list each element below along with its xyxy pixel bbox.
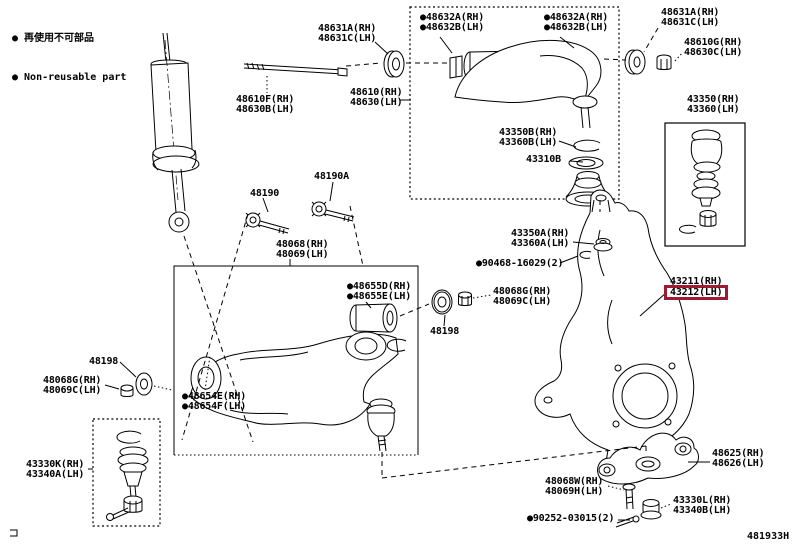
camber-adjust-cam-bolts-drawing bbox=[246, 202, 354, 234]
callout-48198-right-line-1[interactable]: 48198 bbox=[430, 327, 459, 337]
callout-48610g[interactable]: 48610G(RH)48630C(LH) bbox=[684, 38, 742, 57]
callout-48625-line-2[interactable]: 48626(LH) bbox=[712, 459, 764, 469]
callout-48190a-line-1[interactable]: 48190A bbox=[314, 172, 349, 182]
callout-48068g-left-line-2[interactable]: 48069C(LH) bbox=[43, 386, 101, 396]
upper-ball-joint-kit-drawing bbox=[680, 130, 722, 233]
cam-plate-left-drawing bbox=[121, 373, 152, 397]
callout-48068[interactable]: 48068(RH)48069(LH) bbox=[276, 240, 328, 259]
callout-48632-right-line-2[interactable]: ●48632B(LH) bbox=[544, 23, 608, 33]
callout-48632-left-line-2[interactable]: ●48632B(LH) bbox=[420, 23, 484, 33]
callout-48068g-right-line-2[interactable]: 48069C(LH) bbox=[493, 297, 551, 307]
callout-90468-line-1[interactable]: ●90468-16029(2) bbox=[476, 259, 563, 269]
callout-48068w-line-2[interactable]: 48069H(LH) bbox=[545, 487, 603, 497]
callout-48610f[interactable]: 48610F(RH)48630B(LH) bbox=[236, 95, 294, 114]
callout-48610-line-2[interactable]: 48630(LH) bbox=[350, 98, 402, 108]
callout-48068w[interactable]: 48068W(RH)48069H(LH) bbox=[545, 477, 603, 496]
callout-48655-line-2[interactable]: ●48655E(LH) bbox=[347, 292, 411, 302]
legend: ● 再使用不可部品 ● Non-reusable part bbox=[12, 6, 126, 110]
upper-arm-shaft-bolt-drawing bbox=[244, 51, 404, 77]
callout-48631a-right[interactable]: 48631A(RH)48631C(LH) bbox=[661, 8, 719, 27]
corner-print-mark bbox=[10, 530, 17, 536]
callout-48198-left[interactable]: 48198 bbox=[89, 357, 118, 367]
legend-line-jp: ● 再使用不可部品 bbox=[12, 32, 126, 45]
callout-48610g-line-2[interactable]: 48630C(LH) bbox=[684, 48, 742, 58]
callout-48631a-left-line-2[interactable]: 48631C(LH) bbox=[318, 34, 376, 44]
callout-48610[interactable]: 48610(RH)48630(LH) bbox=[350, 88, 402, 107]
callout-48068g-left[interactable]: 48068G(RH)48069C(LH) bbox=[43, 376, 101, 395]
callout-43350b[interactable]: 43350B(RH)43360B(LH) bbox=[499, 128, 557, 147]
callout-48625[interactable]: 48625(RH)48626(LH) bbox=[712, 449, 764, 468]
callout-48190-line-1[interactable]: 48190 bbox=[250, 189, 279, 199]
callout-43350b-line-2[interactable]: 43360B(LH) bbox=[499, 138, 557, 148]
callout-90252[interactable]: ●90252-03015(2) bbox=[527, 514, 614, 524]
callout-43330l[interactable]: 43330L(RH)43340B(LH) bbox=[673, 496, 731, 515]
camber-washer-nut-drawing bbox=[625, 50, 671, 74]
callout-43310b-line-1[interactable]: 43310B bbox=[526, 155, 561, 165]
callout-48654-line-2[interactable]: ●48654F(LH) bbox=[182, 402, 246, 412]
callout-43330l-line-2[interactable]: 43340B(LH) bbox=[673, 506, 731, 516]
callout-48654[interactable]: ●48654E(RH)●48654F(LH) bbox=[182, 392, 246, 411]
callout-48190a[interactable]: 48190A bbox=[314, 172, 349, 182]
lower-ball-joint-kit-drawing bbox=[107, 431, 149, 520]
callout-90252-line-1[interactable]: ●90252-03015(2) bbox=[527, 514, 614, 524]
callout-48610f-line-2[interactable]: 48630B(LH) bbox=[236, 105, 294, 115]
callout-48068-line-2[interactable]: 48069(LH) bbox=[276, 250, 328, 260]
callout-48190[interactable]: 48190 bbox=[250, 189, 279, 199]
callout-43310b[interactable]: 43310B bbox=[526, 155, 561, 165]
callout-48631a-right-line-2[interactable]: 48631C(LH) bbox=[661, 18, 719, 28]
callout-48198-right[interactable]: 48198 bbox=[430, 327, 459, 337]
callout-43211-43212-line-2[interactable]: 43212(LH) bbox=[664, 285, 728, 301]
callout-48198-left-line-1[interactable]: 48198 bbox=[89, 357, 118, 367]
lower-arm-bushing-drawing bbox=[350, 304, 397, 332]
cam-plate-right-drawing bbox=[432, 290, 472, 314]
callout-43330k-line-2[interactable]: 43340A(LH) bbox=[26, 470, 84, 480]
callout-48631a-left[interactable]: 48631A(RH)48631C(LH) bbox=[318, 24, 376, 43]
callout-43350[interactable]: 43350(RH)43360(LH) bbox=[687, 95, 739, 114]
callout-43211-43212[interactable]: 43211(RH)43212(LH) bbox=[670, 277, 722, 300]
callout-48068g-right[interactable]: 48068G(RH)48069C(LH) bbox=[493, 287, 551, 306]
callout-48655[interactable]: ●48655D(RH)●48655E(LH) bbox=[347, 282, 411, 301]
callout-48632-left[interactable]: ●48632A(RH)●48632B(LH) bbox=[420, 13, 484, 32]
callout-90468[interactable]: ●90468-16029(2) bbox=[476, 259, 563, 269]
callout-43350a[interactable]: 43350A(RH)43360A(LH) bbox=[511, 229, 569, 248]
parts-diagram-page: ● 再使用不可部品 ● Non-reusable part 48631A(RH)… bbox=[0, 0, 796, 549]
callout-48632-right[interactable]: ●48632A(RH)●48632B(LH) bbox=[544, 13, 608, 32]
callout-43350a-line-2[interactable]: 43360A(LH) bbox=[511, 239, 569, 249]
callout-43330k[interactable]: 43330K(RH)43340A(LH) bbox=[26, 460, 84, 479]
callout-43350-line-2[interactable]: 43360(LH) bbox=[687, 105, 739, 115]
lower-arm-ball-joint-drawing bbox=[367, 399, 395, 451]
legend-line-en: ● Non-reusable part bbox=[12, 71, 126, 84]
shock-absorber-drawing bbox=[151, 33, 199, 232]
figure-code: 481933H bbox=[747, 531, 789, 542]
mount-hardware-drawing bbox=[616, 484, 661, 527]
